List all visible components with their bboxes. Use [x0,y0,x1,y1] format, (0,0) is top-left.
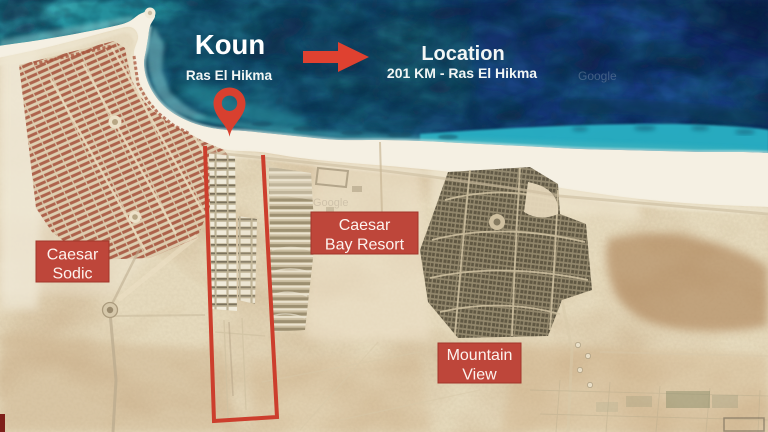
svg-text:Google: Google [313,197,348,209]
svg-text:Google: Google [578,69,617,83]
svg-text:Koun: Koun [195,29,265,60]
svg-text:Caesar: Caesar [47,247,99,264]
svg-text:201 KM - Ras El Hikma: 201 KM - Ras El Hikma [387,65,537,81]
svg-text:View: View [462,367,497,384]
svg-text:Caesar: Caesar [339,217,391,234]
svg-text:Ras El Hikma: Ras El Hikma [186,68,273,83]
svg-text:Mountain: Mountain [447,347,513,364]
svg-text:Bay Resort: Bay Resort [325,237,405,254]
svg-text:Sodic: Sodic [52,266,92,283]
svg-text:Location: Location [421,43,504,65]
